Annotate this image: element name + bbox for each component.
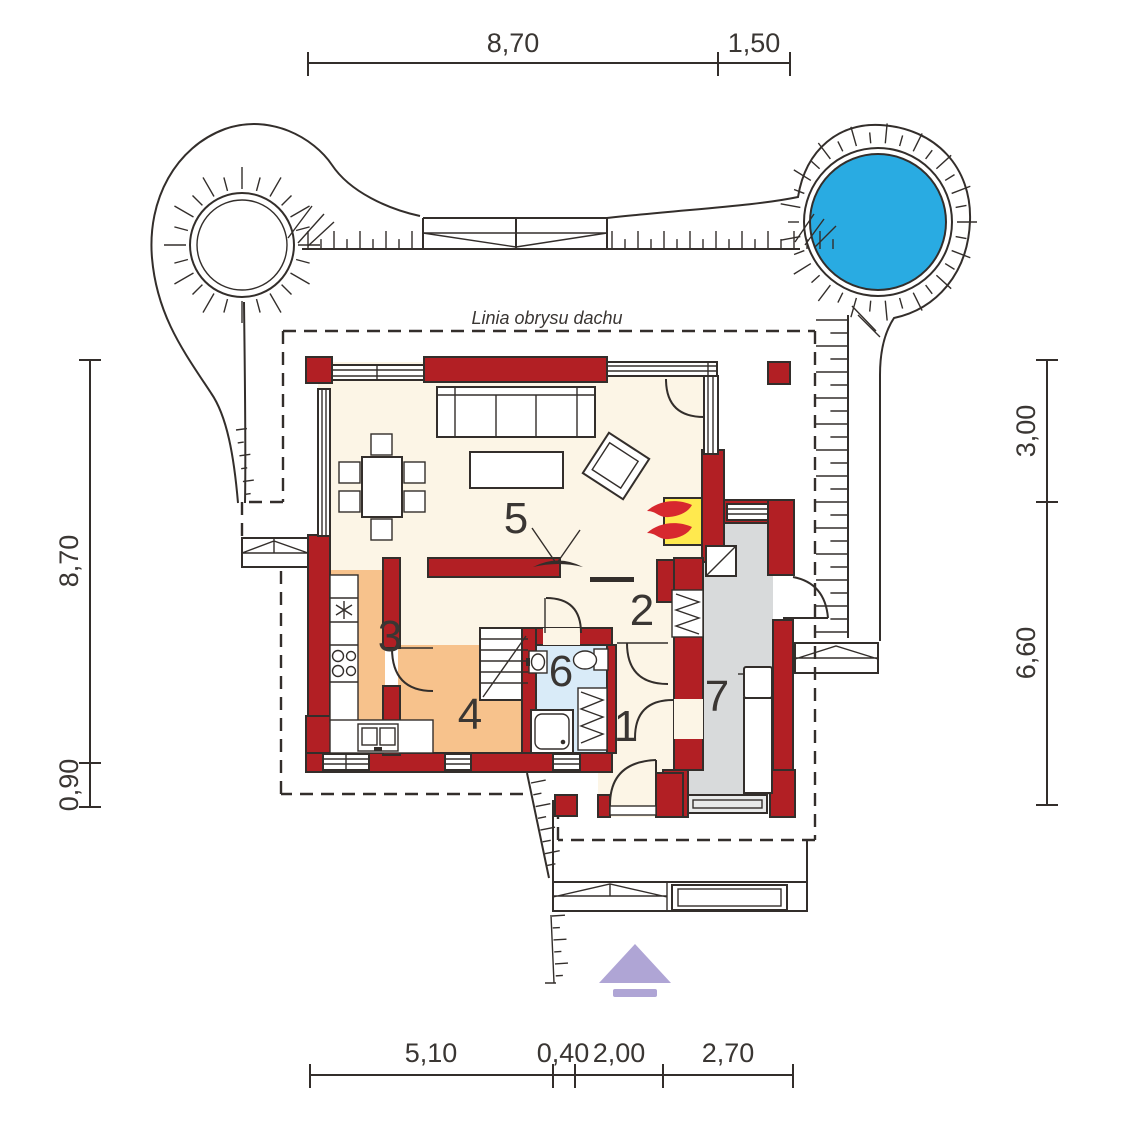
garage-door: [688, 795, 767, 813]
room-label-7: 7: [705, 672, 729, 721]
room-label-5: 5: [504, 494, 528, 543]
room-label-4: 4: [458, 690, 482, 739]
window-garage-north: [727, 504, 768, 520]
kitchen-sink: [358, 724, 398, 751]
dim-left-main: 8,70: [54, 535, 84, 588]
dim-bottom-1: 5,10: [405, 1038, 458, 1068]
dimension-bottom: 5,10 0,40 2,00 2,70: [310, 1038, 793, 1088]
room-label-2: 2: [630, 586, 654, 635]
wardrobe-corridor: [672, 590, 703, 637]
window-south-kitchen: [323, 754, 369, 770]
dim-right-upper: 3,00: [1011, 405, 1041, 458]
boiler: [738, 667, 772, 698]
garage-workbench: [744, 698, 772, 793]
wardrobe-hall: [578, 688, 607, 750]
floor-plan-page: Linia obrysu dachu: [0, 0, 1123, 1123]
wall-pillar-ne: [768, 362, 790, 384]
wall-garage-east: [773, 620, 793, 770]
dim-right-lower: 6,60: [1011, 627, 1041, 680]
wall-garage-se: [770, 770, 795, 817]
dim-bottom-4: 2,70: [702, 1038, 755, 1068]
wall-tv-lowwall: [428, 558, 560, 577]
entrance-walkway: [527, 773, 556, 983]
side-terrace-steps: [242, 538, 308, 567]
room-label-6: 6: [549, 647, 573, 696]
wall-north: [424, 357, 607, 382]
dimension-right: 3,00 6,60: [1011, 360, 1058, 805]
dim-left-small: 0,90: [54, 759, 84, 812]
garage-side-steps: [795, 643, 878, 673]
sofa: [437, 387, 595, 437]
window-west: [318, 389, 330, 536]
dim-top-right: 1,50: [728, 28, 781, 58]
porch-pillar: [555, 795, 577, 816]
wall-entry-east: [656, 773, 683, 817]
window-north-1: [332, 365, 424, 380]
bathroom-sink: [526, 651, 547, 673]
dim-bottom-2: 0,40: [537, 1038, 590, 1068]
toilet: [574, 649, 609, 670]
pool: [804, 148, 952, 296]
wall-sw-corner: [306, 716, 332, 755]
wall-west: [308, 535, 330, 718]
wall-pillar-nw: [306, 357, 332, 383]
wall-garage-ne: [768, 500, 794, 575]
opening-bath-door: [543, 628, 580, 645]
window-south-bath: [553, 754, 580, 770]
floor-plan-drawing: Linia obrysu dachu: [0, 0, 1123, 1123]
front-terrace: [553, 810, 807, 911]
room-label-3: 3: [378, 612, 402, 661]
shower: [531, 710, 573, 753]
floor-step-bar: [590, 577, 634, 582]
tree-icon: [190, 193, 294, 297]
terrain-left-inner-edge: [244, 302, 245, 503]
garage-side-door: [783, 577, 828, 618]
dimension-left: 8,70 0,90: [54, 360, 101, 811]
dim-bottom-3: 2,00: [593, 1038, 646, 1068]
driveway-band: [302, 218, 800, 249]
wall-entry-west: [598, 795, 610, 817]
room-label-1: 1: [614, 702, 638, 751]
dimension-top: 8,70 1,50: [308, 28, 790, 76]
dim-top-main: 8,70: [487, 28, 540, 58]
roof-outline-label: Linia obrysu dachu: [471, 308, 622, 328]
pool-water: [810, 154, 946, 290]
coffee-table: [470, 452, 563, 488]
chimney-block: [706, 546, 736, 576]
window-south-hall: [445, 754, 471, 770]
opening-hall-garage: [674, 699, 703, 739]
entrance-arrow-icon: [599, 944, 671, 997]
